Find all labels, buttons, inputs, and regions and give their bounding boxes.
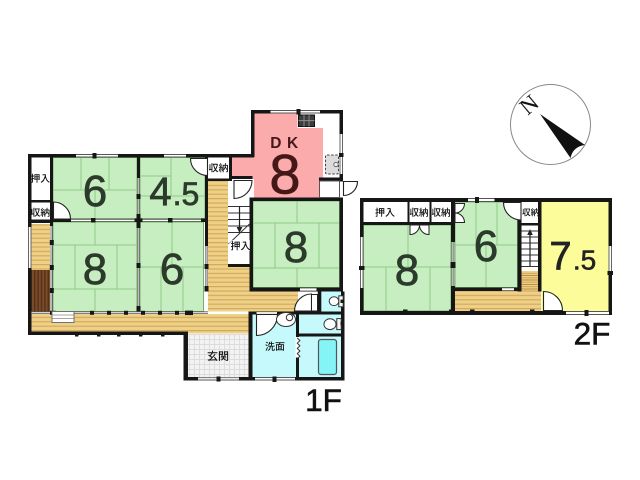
svg-text:7: 7	[549, 235, 571, 279]
svg-text:8: 8	[83, 245, 107, 294]
svg-text:2F: 2F	[574, 316, 611, 352]
svg-text:.5: .5	[173, 176, 200, 212]
svg-text:8: 8	[395, 246, 419, 295]
svg-text:8: 8	[269, 143, 300, 206]
svg-text:4: 4	[149, 170, 171, 214]
svg-text:1F: 1F	[305, 382, 342, 418]
svg-text:.5: .5	[573, 245, 596, 276]
svg-text:6: 6	[474, 222, 498, 271]
svg-text:8: 8	[284, 223, 308, 272]
svg-text:6: 6	[160, 245, 184, 294]
svg-text:6: 6	[83, 167, 107, 216]
